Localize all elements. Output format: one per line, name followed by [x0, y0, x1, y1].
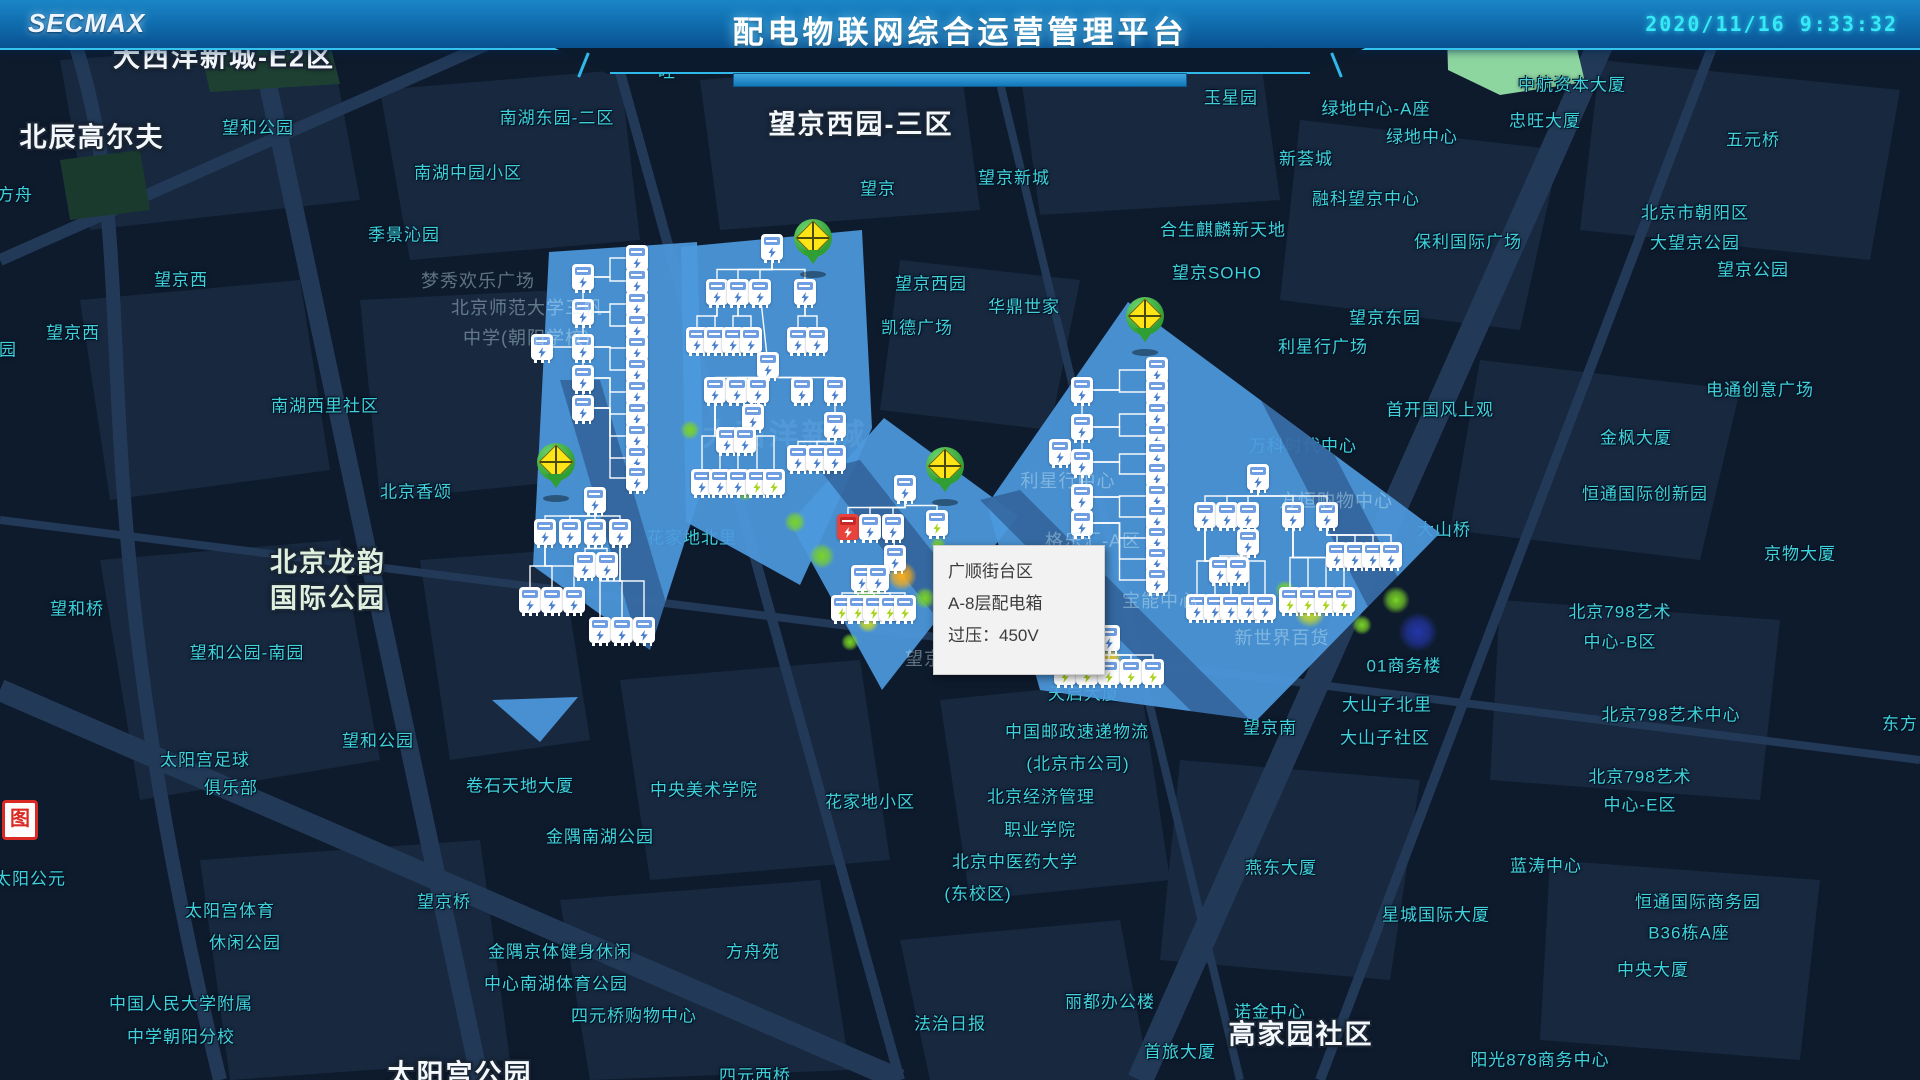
box-screen [1365, 545, 1381, 553]
distribution-box[interactable] [824, 412, 846, 438]
lightning-icon [547, 600, 557, 611]
box-screen [870, 568, 886, 576]
lightning-icon [900, 608, 910, 619]
box-screen [629, 448, 645, 456]
distribution-box[interactable] [1071, 414, 1093, 440]
lightning-icon [800, 292, 810, 303]
tooltip-line: A-8层配电箱 [948, 588, 1090, 620]
lightning-icon [710, 340, 720, 351]
box-screen [794, 380, 810, 388]
lightning-icon [1200, 515, 1210, 526]
distribution-box-alarm[interactable] [837, 514, 859, 540]
pin-cross-line [1129, 315, 1161, 317]
box-screen [840, 517, 856, 525]
box-screen [1240, 505, 1256, 513]
distribution-box[interactable] [1071, 377, 1093, 403]
lightning-icon [1233, 570, 1243, 581]
lightning-icon [793, 340, 803, 351]
distribution-box[interactable] [559, 519, 581, 545]
lightning-icon [578, 408, 588, 419]
connector [1093, 414, 1146, 427]
lightning-icon [569, 600, 579, 611]
lightning-icon [602, 565, 612, 576]
box-screen [897, 598, 913, 606]
box-screen [750, 380, 766, 388]
lightning-icon [869, 608, 879, 619]
box-screen [712, 472, 728, 480]
lightning-icon [1226, 607, 1236, 618]
device-tooltip: 广顺街台区A-8层配电箱过压：450V [933, 545, 1105, 675]
box-screen [575, 267, 591, 275]
tooltip-line: 过压：450V [948, 620, 1090, 652]
box-screen [629, 468, 645, 476]
box-screen [629, 338, 645, 346]
map-label-dim: 梦秀欢乐广场 [421, 267, 535, 293]
area-pin[interactable] [794, 219, 832, 257]
lightning-icon [733, 292, 743, 303]
distribution-box[interactable] [1254, 594, 1276, 620]
distribution-box[interactable] [584, 487, 606, 513]
box-screen [629, 271, 645, 279]
secmax-logo: SECMAX [28, 8, 145, 39]
distribution-box[interactable] [584, 519, 606, 545]
connector [530, 545, 545, 587]
box-screen [760, 355, 776, 363]
lightning-icon [740, 440, 750, 451]
lightning-icon [932, 523, 942, 534]
box-screen [1257, 597, 1273, 605]
lightning-icon [1222, 515, 1232, 526]
lightning-icon [890, 558, 900, 569]
lightning-icon [632, 478, 642, 489]
lightning-icon [733, 482, 743, 493]
box-screen [587, 522, 603, 530]
box-screen [1149, 570, 1165, 578]
box-screen [544, 590, 560, 598]
distribution-box[interactable] [763, 469, 785, 495]
box-screen [827, 415, 843, 423]
box-screen [599, 555, 615, 563]
box-screen [809, 330, 825, 338]
lightning-icon [797, 390, 807, 401]
lightning-icon [1210, 607, 1220, 618]
box-screen [719, 430, 735, 438]
distribution-box[interactable] [867, 565, 889, 591]
box-screen [1318, 590, 1334, 598]
lightning-icon [1055, 452, 1065, 463]
box-screen [629, 360, 645, 368]
lightning-icon [715, 482, 725, 493]
box-screen [612, 522, 628, 530]
box-screen [1149, 444, 1165, 452]
lightning-icon [639, 630, 649, 641]
distribution-box[interactable] [926, 510, 948, 536]
connector [798, 305, 805, 327]
box-screen [897, 478, 913, 486]
distribution-box[interactable] [572, 395, 594, 421]
box-screen [729, 380, 745, 388]
box-screen [1347, 545, 1363, 553]
pin-shadow [932, 499, 958, 506]
box-screen [809, 448, 825, 456]
box-screen [1240, 532, 1256, 540]
box-screen [887, 548, 903, 556]
lightning-icon [755, 292, 765, 303]
connector [715, 305, 717, 327]
connector [594, 408, 626, 478]
pin-cross-line [929, 465, 961, 467]
box-screen [1074, 417, 1090, 425]
box-screen [575, 368, 591, 376]
lightning-icon [728, 340, 738, 351]
box-screen [730, 472, 746, 480]
connector [594, 347, 626, 370]
box-screen [636, 620, 652, 628]
connector [733, 305, 738, 327]
box-screen [1383, 545, 1399, 553]
distribution-box[interactable] [574, 552, 596, 578]
lightning-icon [1077, 497, 1087, 508]
distribution-box[interactable] [1227, 557, 1249, 583]
distribution-box[interactable] [740, 327, 762, 353]
lightning-icon [1126, 672, 1136, 683]
lightning-icon [1148, 672, 1158, 683]
box-screen [1074, 513, 1090, 521]
distribution-box[interactable] [1049, 439, 1071, 465]
box-screen [707, 380, 723, 388]
box-screen [522, 590, 538, 598]
box-screen [862, 517, 878, 525]
lightning-icon [888, 527, 898, 538]
pin-shadow [800, 271, 826, 278]
box-screen [1197, 505, 1213, 513]
box-screen [707, 330, 723, 338]
distribution-box[interactable] [1194, 502, 1216, 528]
distribution-box[interactable] [534, 519, 556, 545]
distribution-box[interactable] [806, 327, 828, 353]
box-screen [1074, 380, 1090, 388]
box-screen [1149, 486, 1165, 494]
lightning-icon [1368, 555, 1378, 566]
connector [594, 258, 626, 277]
lightning-icon [732, 390, 742, 401]
connector [697, 305, 717, 327]
map-label-dim: 北京师范大学三帆 [451, 294, 603, 320]
box-screen [730, 282, 746, 290]
lightning-icon [615, 532, 625, 543]
box-screen [1149, 528, 1165, 536]
pin-shadow [1132, 349, 1158, 356]
lightning-icon [769, 482, 779, 493]
distribution-box[interactable] [859, 514, 881, 540]
distribution-box[interactable] [572, 365, 594, 391]
distribution-box[interactable] [706, 279, 728, 305]
pin-cross-line [797, 237, 829, 239]
box-screen [725, 330, 741, 338]
connector [620, 545, 644, 617]
map-canvas[interactable]: 望和公园南湖东园-二区旺南湖中园小区望京望京新城玉星园绿地中心-A座绿地中心中航… [0, 0, 1920, 1080]
distribution-box[interactable] [1142, 659, 1164, 685]
box-screen [1336, 590, 1352, 598]
connector [702, 403, 715, 469]
connector [1093, 454, 1146, 462]
lightning-icon [617, 630, 627, 641]
box-screen [1149, 360, 1165, 368]
distribution-box[interactable] [1380, 542, 1402, 568]
box-screen [577, 555, 593, 563]
lightning-icon [752, 482, 762, 493]
lightning-icon [1386, 555, 1396, 566]
distribution-box[interactable] [734, 427, 756, 453]
box-screen [1149, 549, 1165, 557]
lightning-icon [580, 565, 590, 576]
box-screen [790, 330, 806, 338]
lightning-icon [767, 247, 777, 258]
map-label-dim: 中学(朝阳学校) [463, 324, 591, 350]
lightning-icon [746, 340, 756, 351]
distribution-box[interactable] [824, 377, 846, 403]
lightning-icon [1303, 600, 1313, 611]
lightning-icon [873, 578, 883, 589]
lightning-icon [812, 458, 822, 469]
box-screen [562, 522, 578, 530]
box-screen [592, 620, 608, 628]
box-screen [1123, 662, 1139, 670]
connector [1093, 390, 1146, 392]
box-screen [929, 513, 945, 521]
distribution-box[interactable] [589, 617, 611, 643]
connector [1093, 427, 1146, 436]
connector-lines [0, 0, 1920, 1080]
lightning-icon [722, 440, 732, 451]
distribution-box[interactable] [563, 587, 585, 613]
lightning-icon [590, 500, 600, 511]
stamp-icon: 图 [2, 800, 38, 840]
lightning-icon [843, 527, 853, 538]
lightning-icon [1243, 515, 1253, 526]
lightning-icon [1339, 600, 1349, 611]
distribution-box[interactable] [1333, 587, 1355, 613]
lightning-icon [830, 458, 840, 469]
lightning-icon [540, 532, 550, 543]
distribution-box[interactable] [761, 234, 783, 260]
lightning-icon [1285, 600, 1295, 611]
lightning-icon [1322, 515, 1332, 526]
distribution-box[interactable] [541, 587, 563, 613]
header-underbar [733, 73, 1187, 87]
box-screen [797, 282, 813, 290]
box-screen [766, 472, 782, 480]
box-screen [575, 398, 591, 406]
map-label-dim: 新世界百货 [1235, 624, 1330, 650]
box-screen [1149, 464, 1165, 472]
box-screen [566, 590, 582, 598]
box-screen [537, 522, 553, 530]
distribution-box[interactable] [882, 514, 904, 540]
box-screen [629, 294, 645, 302]
distribution-box[interactable] [894, 595, 916, 621]
lightning-icon [525, 600, 535, 611]
lightning-icon [578, 378, 588, 389]
area-pin[interactable] [926, 447, 964, 485]
distribution-box[interactable] [747, 377, 769, 403]
tooltip-line: 广顺街台区 [948, 556, 1090, 588]
box-screen [745, 407, 761, 415]
header-notch [555, 48, 1365, 74]
lightning-icon [1332, 555, 1342, 566]
box-screen [709, 282, 725, 290]
box-screen [1074, 452, 1090, 460]
pin-shadow [543, 495, 569, 502]
pin-cross-line [540, 461, 572, 463]
lightning-icon [1321, 600, 1331, 611]
lightning-icon [830, 390, 840, 401]
distribution-box[interactable] [727, 279, 749, 305]
distribution-box[interactable] [757, 352, 779, 378]
connector [1093, 370, 1146, 390]
box-screen [1149, 426, 1165, 434]
distribution-box[interactable] [519, 587, 541, 613]
map-label-dim: 利星行中心 [1021, 467, 1116, 493]
box-screen [1329, 545, 1345, 553]
box-screen [1282, 590, 1298, 598]
header-bar: SECMAX 配电物联网综合运营管理平台 2020/11/16 9:33:32 [0, 0, 1920, 50]
distribution-box[interactable] [749, 279, 771, 305]
lightning-icon [1077, 390, 1087, 401]
distribution-box[interactable] [1237, 529, 1259, 555]
lightning-icon [1288, 515, 1298, 526]
lightning-icon [857, 578, 867, 589]
distribution-box[interactable] [572, 264, 594, 290]
box-screen [885, 517, 901, 525]
lightning-icon [1077, 427, 1087, 438]
datetime-display: 2020/11/16 9:33:32 [1645, 12, 1898, 36]
lightning-icon [812, 340, 822, 351]
distribution-box[interactable] [726, 377, 748, 403]
box-screen [1052, 442, 1068, 450]
distribution-box[interactable] [1237, 502, 1259, 528]
page-title: 配电物联网综合运营管理平台 [733, 7, 1188, 52]
box-screen [1149, 382, 1165, 390]
distribution-box[interactable] [791, 377, 813, 403]
connector [1093, 497, 1146, 517]
lightning-icon [865, 527, 875, 538]
connector [594, 277, 626, 281]
distribution-box[interactable] [596, 552, 618, 578]
lightning-icon [1260, 607, 1270, 618]
lightning-icon [1243, 542, 1253, 553]
connector [545, 545, 574, 587]
lightning-icon [710, 390, 720, 401]
area-pin[interactable] [537, 443, 575, 481]
box-screen [614, 620, 630, 628]
distribution-box[interactable] [611, 617, 633, 643]
box-screen [737, 430, 753, 438]
lightning-icon [565, 532, 575, 543]
distribution-box[interactable] [1120, 659, 1142, 685]
box-screen [1145, 662, 1161, 670]
box-screen [1212, 560, 1228, 568]
box-screen [1223, 597, 1239, 605]
box-screen [629, 382, 645, 390]
box-screen [827, 380, 843, 388]
lightning-icon [1215, 570, 1225, 581]
lightning-icon [595, 630, 605, 641]
box-screen [629, 248, 645, 256]
lightning-icon [578, 277, 588, 288]
map-label-dim: 方恒购物中心 [1279, 487, 1393, 513]
connector [805, 305, 817, 327]
box-screen [587, 490, 603, 498]
box-screen [629, 404, 645, 412]
box-screen [1149, 507, 1165, 515]
distribution-box[interactable] [794, 279, 816, 305]
box-screen [1149, 404, 1165, 412]
distribution-box[interactable] [824, 445, 846, 471]
lightning-icon [712, 292, 722, 303]
box-screen [790, 448, 806, 456]
lightning-icon [1104, 638, 1114, 649]
box-screen [629, 316, 645, 324]
box-screen [1230, 560, 1246, 568]
box-screen [694, 472, 710, 480]
distribution-box[interactable] [626, 465, 648, 491]
box-screen [752, 282, 768, 290]
box-screen [689, 330, 705, 338]
connector [1197, 528, 1205, 594]
lightning-icon [900, 488, 910, 499]
box-screen [629, 426, 645, 434]
distribution-box[interactable] [1247, 464, 1269, 490]
lightning-icon [853, 608, 863, 619]
distribution-box[interactable] [609, 519, 631, 545]
box-screen [1250, 467, 1266, 475]
box-screen [1300, 590, 1316, 598]
distribution-box[interactable] [704, 377, 726, 403]
lightning-icon [1104, 672, 1114, 683]
lightning-icon [837, 608, 847, 619]
box-screen [764, 237, 780, 245]
lightning-icon [763, 365, 773, 376]
lightning-icon [692, 340, 702, 351]
box-screen [827, 448, 843, 456]
lightning-icon [753, 390, 763, 401]
lightning-icon [1350, 555, 1360, 566]
distribution-box[interactable] [894, 475, 916, 501]
lightning-icon [1253, 477, 1263, 488]
box-screen [743, 330, 759, 338]
box-screen [1219, 505, 1235, 513]
lightning-icon [793, 458, 803, 469]
area-pin[interactable] [1126, 297, 1164, 335]
connector [738, 305, 751, 327]
map-label-dim: 宝能中心 [1122, 587, 1198, 613]
distribution-box[interactable] [1216, 502, 1238, 528]
distribution-box[interactable] [633, 617, 655, 643]
lightning-icon [697, 482, 707, 493]
lightning-icon [590, 532, 600, 543]
lightning-icon [1244, 607, 1254, 618]
lightning-icon [830, 425, 840, 436]
